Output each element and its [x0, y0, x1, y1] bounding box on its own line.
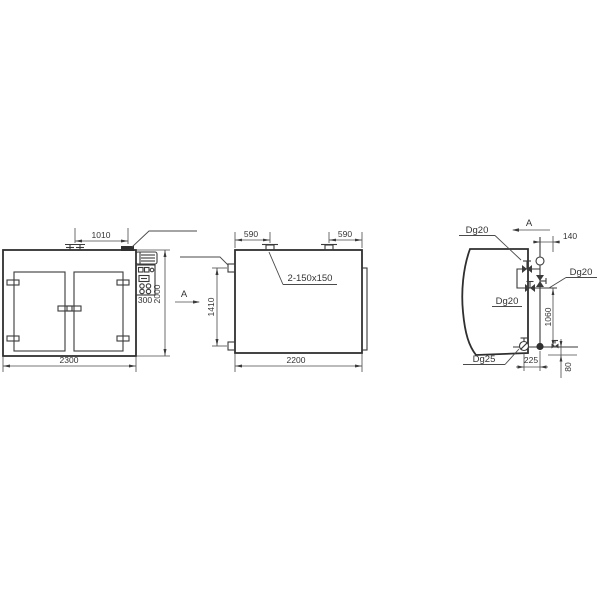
svg-text:140: 140 — [563, 231, 577, 241]
valve-icon — [522, 261, 532, 273]
dim-vent-spacing: 1010 — [75, 228, 128, 244]
label-dg25-drain: Dg25 — [463, 349, 519, 365]
engineering-drawing: 1010 2300 2000 300 A — [0, 0, 600, 600]
front-view: 1010 2300 2000 300 A — [3, 228, 200, 372]
damper-leader — [132, 231, 197, 247]
side-view: 590 590 2-150x150 2200 — [180, 229, 367, 372]
panel-knob-icon — [146, 289, 150, 293]
svg-text:2300: 2300 — [60, 355, 79, 365]
dim-vent-right: 590 — [329, 229, 362, 248]
left-door — [14, 272, 65, 351]
svg-text:590: 590 — [244, 229, 258, 239]
svg-text:80: 80 — [563, 362, 573, 372]
label-dg20-mid: Dg20 — [492, 296, 522, 307]
svg-text:225: 225 — [524, 355, 538, 365]
dim-port-spacing: 1410 — [206, 268, 227, 346]
label-dg20-branch: Dg20 — [549, 267, 597, 288]
pressure-gauge-icon — [536, 257, 544, 265]
panel-lamp-icon — [150, 268, 154, 272]
pipe-port-icon — [228, 264, 235, 350]
drawing-canvas: 1010 2300 2000 300 A — [0, 0, 600, 600]
cabinet-outline — [3, 250, 136, 356]
dim-riser-height: 1060 — [543, 288, 554, 347]
piping-detail-view: A Dg20 Dg20 Dg20 Dg25 — [459, 218, 597, 378]
pipe-junction-icon — [536, 343, 543, 350]
dim-overall-width: 2300 — [3, 355, 136, 372]
dim-vent-left: 590 — [235, 229, 270, 248]
svg-text:1060: 1060 — [543, 307, 553, 326]
panel-knob-icon — [146, 284, 150, 288]
valve-icon — [536, 275, 546, 287]
panel-knob-icon — [140, 289, 144, 293]
svg-text:Dg20: Dg20 — [466, 225, 489, 236]
svg-text:2000: 2000 — [152, 284, 162, 303]
svg-text:590: 590 — [338, 229, 352, 239]
view-arrow-a: A — [512, 218, 550, 232]
svg-text:A: A — [526, 218, 533, 229]
panel-knob-icon — [140, 284, 144, 288]
cabinet-side-outline — [235, 250, 362, 353]
svg-text:2-150x150: 2-150x150 — [288, 273, 333, 284]
svg-text:Dg20: Dg20 — [570, 267, 593, 278]
section-arrow-a: A — [175, 289, 200, 304]
port-leader — [180, 257, 228, 265]
dim-control-box: 300 — [138, 295, 152, 305]
door-handle-icon — [58, 306, 81, 311]
svg-text:1410: 1410 — [206, 297, 216, 316]
svg-text:Dg20: Dg20 — [496, 296, 519, 307]
svg-text:Dg25: Dg25 — [473, 354, 496, 365]
svg-text:A: A — [181, 289, 188, 300]
svg-text:1010: 1010 — [92, 230, 111, 240]
panel-switch-icon — [145, 268, 150, 273]
valve-icon — [525, 282, 535, 293]
svg-text:2200: 2200 — [287, 355, 306, 365]
fan-motor-icon — [136, 252, 157, 264]
vent-note: 2-150x150 — [269, 252, 337, 285]
panel-switch-icon — [139, 268, 144, 273]
dim-depth: 2200 — [235, 354, 362, 372]
